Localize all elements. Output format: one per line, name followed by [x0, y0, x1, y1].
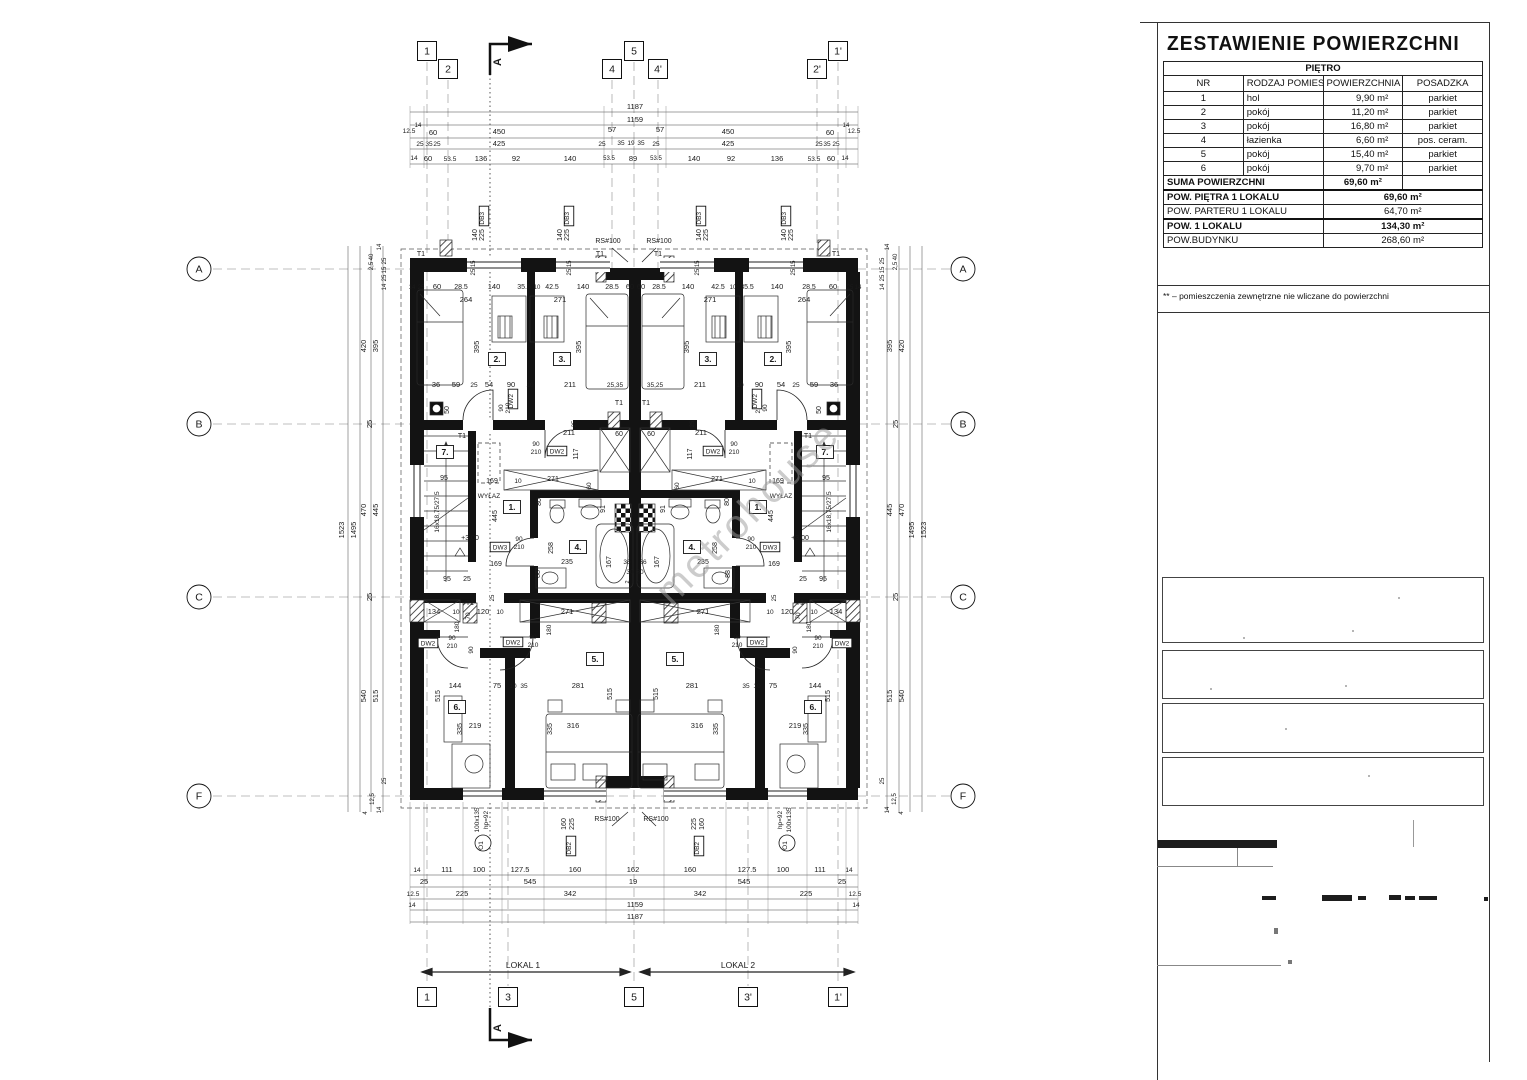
- dim-label: 100x135: [786, 807, 793, 832]
- dim-label: 1': [834, 992, 842, 1004]
- dim-label: T1: [654, 251, 662, 258]
- dim-label: 140: [781, 229, 788, 241]
- dim-label: 2.: [769, 354, 776, 364]
- dim-label: 19: [627, 140, 635, 147]
- dim-label: 14: [841, 155, 849, 162]
- dim-label: +3,00: [461, 535, 479, 542]
- dim-label: F: [960, 791, 966, 803]
- area-table-body: PIĘTRONRRODZAJ POMIESZCZENIAPOWIERZCHNIA…: [1164, 62, 1483, 248]
- table-row: 6pokój9,70 m²parkiet: [1164, 162, 1483, 176]
- dim-label: DB2: [694, 842, 701, 855]
- dim-label: 53.5: [808, 156, 821, 163]
- dim-label: 120: [781, 607, 794, 616]
- redaction-bar: [1158, 840, 1277, 848]
- dim-label: 144: [449, 681, 462, 690]
- table-cell: łazienka: [1243, 134, 1323, 148]
- redacted-text: [1262, 896, 1276, 900]
- dim-label: 60: [647, 431, 655, 438]
- drawing-page: 1187115912.514604505757450601412.5253525…: [0, 0, 1527, 1080]
- dim-label: 445: [492, 510, 499, 522]
- dim-label: 281: [572, 681, 585, 690]
- dim-label: WYŁAZ: [478, 493, 500, 500]
- dim-label: 1495: [907, 522, 916, 539]
- dim-label: 210: [514, 544, 525, 551]
- dim-label: DB3: [479, 212, 486, 225]
- dim-label: 60: [626, 282, 634, 291]
- dim-label: 5: [631, 992, 637, 1004]
- dim-label: 420: [897, 340, 906, 353]
- table-cell: parkiet: [1403, 106, 1483, 120]
- dim-label: 4: [609, 64, 615, 76]
- dim-label: 140: [682, 282, 695, 291]
- dim-label: 35: [520, 683, 528, 690]
- dim-label: 3: [505, 992, 511, 1004]
- dim-label: 2,5: [893, 261, 899, 270]
- level-marker: [455, 548, 465, 556]
- dim-label: 515: [435, 690, 442, 702]
- table-row: 2pokój11,20 m²parkiet: [1164, 106, 1483, 120]
- table-cell: parkiet: [1403, 92, 1483, 106]
- dim-label: 14: [382, 283, 388, 290]
- dim-label: hp=92: [483, 810, 490, 829]
- dim-label: 14: [413, 867, 421, 874]
- dim-label: 395: [885, 340, 894, 353]
- dim-label: 14: [885, 806, 891, 813]
- dim-label: 35: [425, 141, 433, 148]
- dim-label: 25: [799, 576, 807, 583]
- dim-label: A: [492, 58, 504, 66]
- dim-label: 90: [507, 380, 515, 389]
- dim-label: 42.5: [545, 284, 559, 291]
- dim-label: 225: [479, 229, 486, 241]
- dim-label: 180: [806, 621, 813, 632]
- dim-label: 14: [852, 902, 860, 909]
- dim-label: 14: [408, 902, 416, 909]
- dim-label: 1159: [627, 900, 643, 909]
- dim-label: 160: [684, 865, 697, 874]
- dim-label: 271: [547, 476, 559, 483]
- dim-label: 111: [441, 865, 452, 874]
- dim-label: 120: [477, 607, 490, 616]
- dim-label: 211: [694, 380, 706, 389]
- dim-label: 140: [472, 229, 479, 241]
- title-block-line: [1157, 866, 1273, 867]
- dim-label: 90: [814, 635, 822, 642]
- dim-label: 425: [722, 139, 735, 148]
- dim-label: 14: [415, 123, 422, 129]
- title-block-line: [1157, 965, 1281, 966]
- dim-label: 14: [845, 867, 853, 874]
- dim-label: 14: [409, 285, 416, 291]
- dim-label: 271: [561, 607, 574, 616]
- dim-label: T1: [417, 251, 425, 258]
- dim-label: 395: [682, 341, 691, 354]
- bathtub: [596, 524, 633, 588]
- summary-label: POW. PIĘTRA 1 LOKALU: [1164, 190, 1324, 205]
- table-cell: parkiet: [1403, 148, 1483, 162]
- dim-label: 211: [564, 380, 576, 389]
- dim-label: RS#100: [595, 238, 620, 245]
- dim-label: 70: [465, 612, 472, 620]
- dim-label: 264: [798, 295, 811, 304]
- dim-label: 35: [637, 140, 645, 147]
- dim-label: 425: [493, 139, 506, 148]
- dim-label: 35.5: [517, 284, 531, 291]
- dim-label: 169: [490, 561, 502, 568]
- desk: [744, 296, 778, 342]
- dim-label: 1: [424, 992, 430, 1004]
- dim-label: 25: [572, 420, 578, 427]
- dim-label: 10: [496, 609, 504, 616]
- dim-label: 3.: [704, 354, 711, 364]
- dim-label: 95: [819, 576, 827, 583]
- dim-label: 144: [809, 681, 822, 690]
- dim-label: DW2: [421, 640, 436, 647]
- speck: [1285, 728, 1287, 730]
- speck: [1368, 775, 1370, 777]
- table-row: 3pokój16,80 m²parkiet: [1164, 120, 1483, 134]
- dim-label: 50: [444, 406, 451, 414]
- dim-label: 225: [788, 229, 795, 241]
- dim-label: 40: [893, 253, 899, 260]
- table-cell: 5: [1164, 148, 1244, 162]
- dim-label: 210: [732, 642, 743, 649]
- dim-label: B: [195, 419, 202, 431]
- dim-label: 36: [639, 559, 647, 566]
- table-cell: pokój: [1243, 148, 1323, 162]
- chimney-flue: [639, 504, 655, 532]
- dim-label: 90: [498, 404, 505, 412]
- dim-label: 60: [829, 282, 837, 291]
- dim-label: T1: [615, 400, 623, 407]
- dim-label: 545: [524, 877, 537, 886]
- dim-label: 60: [586, 482, 593, 490]
- table-cell: 9,70 m²: [1323, 162, 1403, 176]
- dim-label: 30: [636, 569, 644, 576]
- dim-label: 335: [713, 723, 720, 735]
- dim-label: 25: [815, 141, 823, 148]
- dim-label: 19: [629, 877, 637, 886]
- dim-label: +3,00: [791, 535, 809, 542]
- dim-label: 25: [772, 594, 778, 601]
- table-group-header: PIĘTRO: [1164, 62, 1483, 76]
- table-cell: pos. ceram.: [1403, 134, 1483, 148]
- panel-divider: [1157, 285, 1490, 286]
- dim-label: 28.5: [454, 284, 468, 291]
- dim-label: 3': [744, 992, 752, 1004]
- dim-label: 25: [847, 285, 854, 291]
- dim-label: 12,5: [370, 793, 376, 805]
- dim-label: 42.5: [711, 284, 725, 291]
- dim-label: 316: [567, 721, 580, 730]
- dim-label: 25: [365, 420, 374, 428]
- dim-label: T1: [832, 251, 840, 258]
- dim-label: 90: [755, 380, 763, 389]
- table-cell: 3: [1164, 120, 1244, 134]
- dim-label: 90: [730, 441, 738, 448]
- column-header: RODZAJ POMIESZCZENIA: [1243, 76, 1323, 92]
- summary-empty: [1403, 176, 1483, 191]
- dim-label: 25 15: [567, 260, 573, 276]
- dim-label: 25: [792, 382, 800, 389]
- dim-label: 57: [656, 125, 664, 134]
- redacted-text: [1322, 895, 1352, 901]
- washbasin: [579, 499, 601, 519]
- dim-label: 167: [654, 556, 661, 568]
- dim-label: DB3: [696, 212, 703, 225]
- dim-label: 54: [485, 380, 493, 389]
- table-cell: parkiet: [1403, 120, 1483, 134]
- dim-label: 95: [440, 475, 448, 482]
- dim-label: T1: [458, 433, 466, 440]
- summary-row: POW. PARTERU 1 LOKALU64,70 m²: [1164, 205, 1483, 220]
- dim-label: 16x18,75/27,5: [434, 491, 441, 533]
- dim-label: 140: [557, 229, 564, 241]
- dim-label: B: [959, 419, 966, 431]
- panel-frame-left: [1157, 22, 1158, 1080]
- toilet: [550, 500, 565, 523]
- dim-label: 515: [885, 690, 894, 703]
- dim-label: 342: [694, 889, 707, 898]
- dim-label: 5.: [671, 654, 678, 664]
- panel-divider: [1157, 312, 1490, 313]
- dim-label: 210: [447, 643, 458, 650]
- dim-label: 225: [564, 229, 571, 241]
- dim-label: 60: [827, 154, 835, 163]
- dim-label: 92: [512, 154, 520, 163]
- summary-value: 69,60 m²: [1323, 176, 1403, 191]
- axis-grid-lines: [213, 62, 952, 986]
- dim-label: 25: [470, 382, 478, 389]
- dim-label: 515: [607, 688, 614, 700]
- table-cell: 2: [1164, 106, 1244, 120]
- dim-label: 35.5: [740, 284, 754, 291]
- dim-label: 40: [369, 253, 375, 260]
- dim-label: 90: [792, 646, 799, 654]
- dim-label: 210: [528, 642, 539, 649]
- dim-label: 60: [637, 282, 645, 291]
- dim-label: 225: [691, 818, 698, 830]
- dim-label: 2: [625, 580, 631, 583]
- dim-label: DB2: [566, 842, 573, 855]
- dim-label: F: [196, 791, 202, 803]
- dim-label: DW2: [506, 639, 521, 646]
- footnote: ** – pomieszczenia zewnętrzne nie wlicza…: [1163, 291, 1389, 301]
- redacted-text: [1358, 896, 1366, 900]
- title-block-box-3: [1162, 703, 1484, 753]
- dim-label: DW2: [508, 394, 515, 409]
- dim-label: 160: [561, 818, 568, 830]
- table-cell: 6: [1164, 162, 1244, 176]
- dim-label: 90: [529, 634, 537, 641]
- redacted-text: [1405, 896, 1415, 900]
- dim-label: 35: [742, 683, 750, 690]
- dim-label: 140: [564, 154, 577, 163]
- dim-label: DW2: [706, 448, 721, 455]
- dim-label: 445: [371, 504, 380, 517]
- dim-label: 95: [822, 475, 830, 482]
- dim-label: 28.5: [652, 284, 666, 291]
- dim-label: 54: [777, 380, 785, 389]
- chimney-flue: [615, 504, 631, 532]
- dim-label: 10: [509, 683, 517, 690]
- dim-label: 140: [688, 154, 701, 163]
- dim-label: 264: [460, 295, 473, 304]
- dim-label: A: [195, 264, 202, 276]
- dim-label: 25: [382, 257, 388, 264]
- dim-label: 225: [800, 889, 813, 898]
- dim-label: 25: [652, 141, 660, 148]
- dim-label: DW2: [835, 640, 850, 647]
- summary-row: SUMA POWIERZCHNI69,60 m²: [1164, 176, 1483, 191]
- table-row: 1hol9,90 m²parkiet: [1164, 92, 1483, 106]
- dim-label: 12.5: [403, 128, 416, 135]
- dim-label: 25,35: [607, 382, 624, 389]
- title-block-box-2: [1162, 650, 1484, 699]
- dim-label: 225: [703, 229, 710, 241]
- dim-label: 70: [795, 612, 802, 620]
- dim-label: 10: [730, 285, 737, 291]
- walls: [410, 258, 860, 800]
- dim-label: 136: [475, 154, 488, 163]
- redacted-text: [1484, 897, 1488, 901]
- dim-label: 28.5: [605, 284, 619, 291]
- washbasin: [669, 499, 691, 519]
- summary-label: SUMA POWIERZCHNI: [1164, 176, 1324, 191]
- dim-label: C: [959, 592, 967, 604]
- dim-label: 335: [803, 723, 810, 735]
- dim-label: 60: [424, 154, 432, 163]
- speck: [1352, 630, 1354, 632]
- dim-label: 25: [416, 141, 424, 148]
- dim-label: 134: [830, 607, 843, 616]
- dim-label: 117: [573, 448, 580, 459]
- dim-label: 169: [486, 478, 498, 485]
- dim-label: 3.: [558, 354, 565, 364]
- table-cell: 9,90 m²: [1323, 92, 1403, 106]
- dim-label: 4.: [574, 542, 581, 552]
- dim-label: DW2: [752, 394, 759, 409]
- summary-row: POW. 1 LOKALU134,30 m²: [1164, 219, 1483, 234]
- panel-title: ZESTAWIENIE POWIERZCHNI: [1167, 33, 1460, 56]
- dim-label: 25: [382, 777, 388, 784]
- dim-label: 14: [410, 155, 418, 162]
- dim-label: 140: [577, 282, 590, 291]
- dim-label: 59: [452, 380, 460, 389]
- dim-label: 1523: [919, 522, 928, 539]
- section-flag-top: [490, 36, 532, 75]
- dim-label: O1: [478, 841, 485, 850]
- dim-label: 1.: [508, 502, 515, 512]
- redacted-text: [1274, 928, 1278, 934]
- title-block-line: [1237, 848, 1238, 867]
- table-cell: 16,80 m²: [1323, 120, 1403, 134]
- table-cell: hol: [1243, 92, 1323, 106]
- dim-label: 14: [855, 285, 862, 291]
- bed: [586, 294, 628, 389]
- dim-label: 271: [704, 295, 717, 304]
- dim-label: 2': [813, 64, 821, 76]
- dim-label: 14: [885, 243, 891, 250]
- dim-label: 180: [454, 621, 461, 632]
- dim-label: 25: [382, 274, 388, 281]
- dim-label: 25 15: [791, 260, 797, 276]
- dim-label: 100: [777, 865, 790, 874]
- dim-label: 420: [359, 340, 368, 353]
- table-row: 5pokój15,40 m²parkiet: [1164, 148, 1483, 162]
- dim-label: 25: [365, 593, 374, 601]
- dim-label: 219: [469, 721, 482, 730]
- speck: [1243, 637, 1245, 639]
- dim-label: 225: [569, 818, 576, 830]
- dim-label: 470: [359, 504, 368, 517]
- summary-value: 69,60 m²: [1323, 190, 1483, 205]
- dim-label: 167: [606, 556, 613, 568]
- dim-label: 75: [493, 681, 501, 690]
- dim-label: 36: [623, 559, 631, 566]
- dim-label: 169: [768, 561, 780, 568]
- dim-label: 10: [810, 609, 818, 616]
- dim-label: RS#100: [594, 816, 619, 823]
- dim-label: 57: [608, 125, 616, 134]
- dim-label: 80: [536, 498, 543, 506]
- dim-label: 10: [526, 382, 534, 389]
- dim-label: DW3: [763, 544, 778, 551]
- dim-label: 470: [897, 504, 906, 517]
- dim-label: 210: [729, 449, 740, 456]
- dim-label: 53.5: [650, 156, 662, 162]
- table-cell: parkiet: [1403, 162, 1483, 176]
- dim-label: 515: [653, 688, 660, 700]
- dim-label: 7.: [441, 447, 448, 457]
- desk: [492, 296, 526, 342]
- dim-label: 211: [695, 428, 707, 437]
- dim-label: LOKAL 2: [721, 960, 755, 970]
- dim-label: 25: [598, 141, 606, 148]
- dim-label: 258: [548, 542, 555, 554]
- dim-label: 90: [733, 634, 741, 641]
- dim-label: 1': [834, 46, 842, 58]
- dim-label: 6.: [809, 702, 816, 712]
- dim-label: 1187: [627, 102, 643, 111]
- dim-label: 25: [418, 285, 425, 291]
- dim-label: 91: [660, 505, 667, 513]
- dim-label: 90: [515, 536, 523, 543]
- dim-label: 16x18,75/27,5: [826, 491, 833, 533]
- dim-label: 450: [722, 127, 735, 136]
- dim-label: 25: [891, 593, 900, 601]
- dim-label: 180: [546, 624, 553, 635]
- dim-label: 90: [762, 404, 769, 412]
- dim-label: A: [492, 1024, 504, 1032]
- dim-label: 28.5: [802, 284, 816, 291]
- dim-label: 6.: [453, 702, 460, 712]
- dim-label: 335: [547, 723, 554, 735]
- dim-label: 25: [463, 576, 471, 583]
- dim-label: 450: [493, 127, 506, 136]
- dim-label: 211: [563, 428, 575, 437]
- dim-label: 25: [690, 420, 696, 427]
- dim-label: 5: [631, 46, 637, 58]
- dim-label: DB3: [564, 212, 571, 225]
- dim-label: 210: [746, 544, 757, 551]
- dim-label: 160: [569, 865, 582, 874]
- speck: [1398, 597, 1400, 599]
- dim-label: T1: [796, 600, 804, 607]
- dim-label: 95: [443, 576, 451, 583]
- dim-label: 60: [615, 431, 623, 438]
- dim-label: 35,25: [647, 382, 664, 389]
